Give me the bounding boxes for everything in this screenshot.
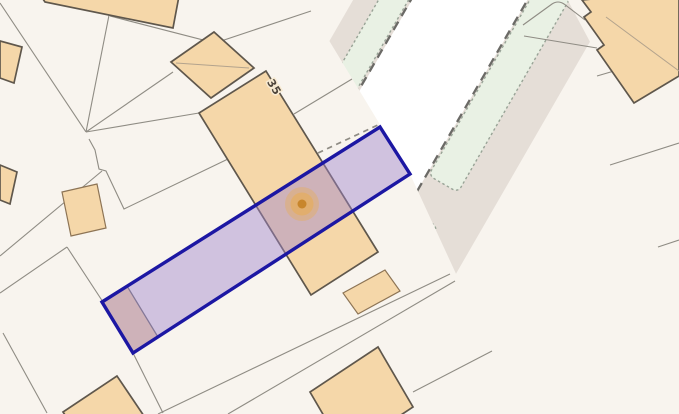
map-canvas[interactable]: 35 — [0, 0, 679, 414]
cadastral-map[interactable]: 35 — [0, 0, 679, 414]
property-marker[interactable] — [285, 187, 319, 221]
